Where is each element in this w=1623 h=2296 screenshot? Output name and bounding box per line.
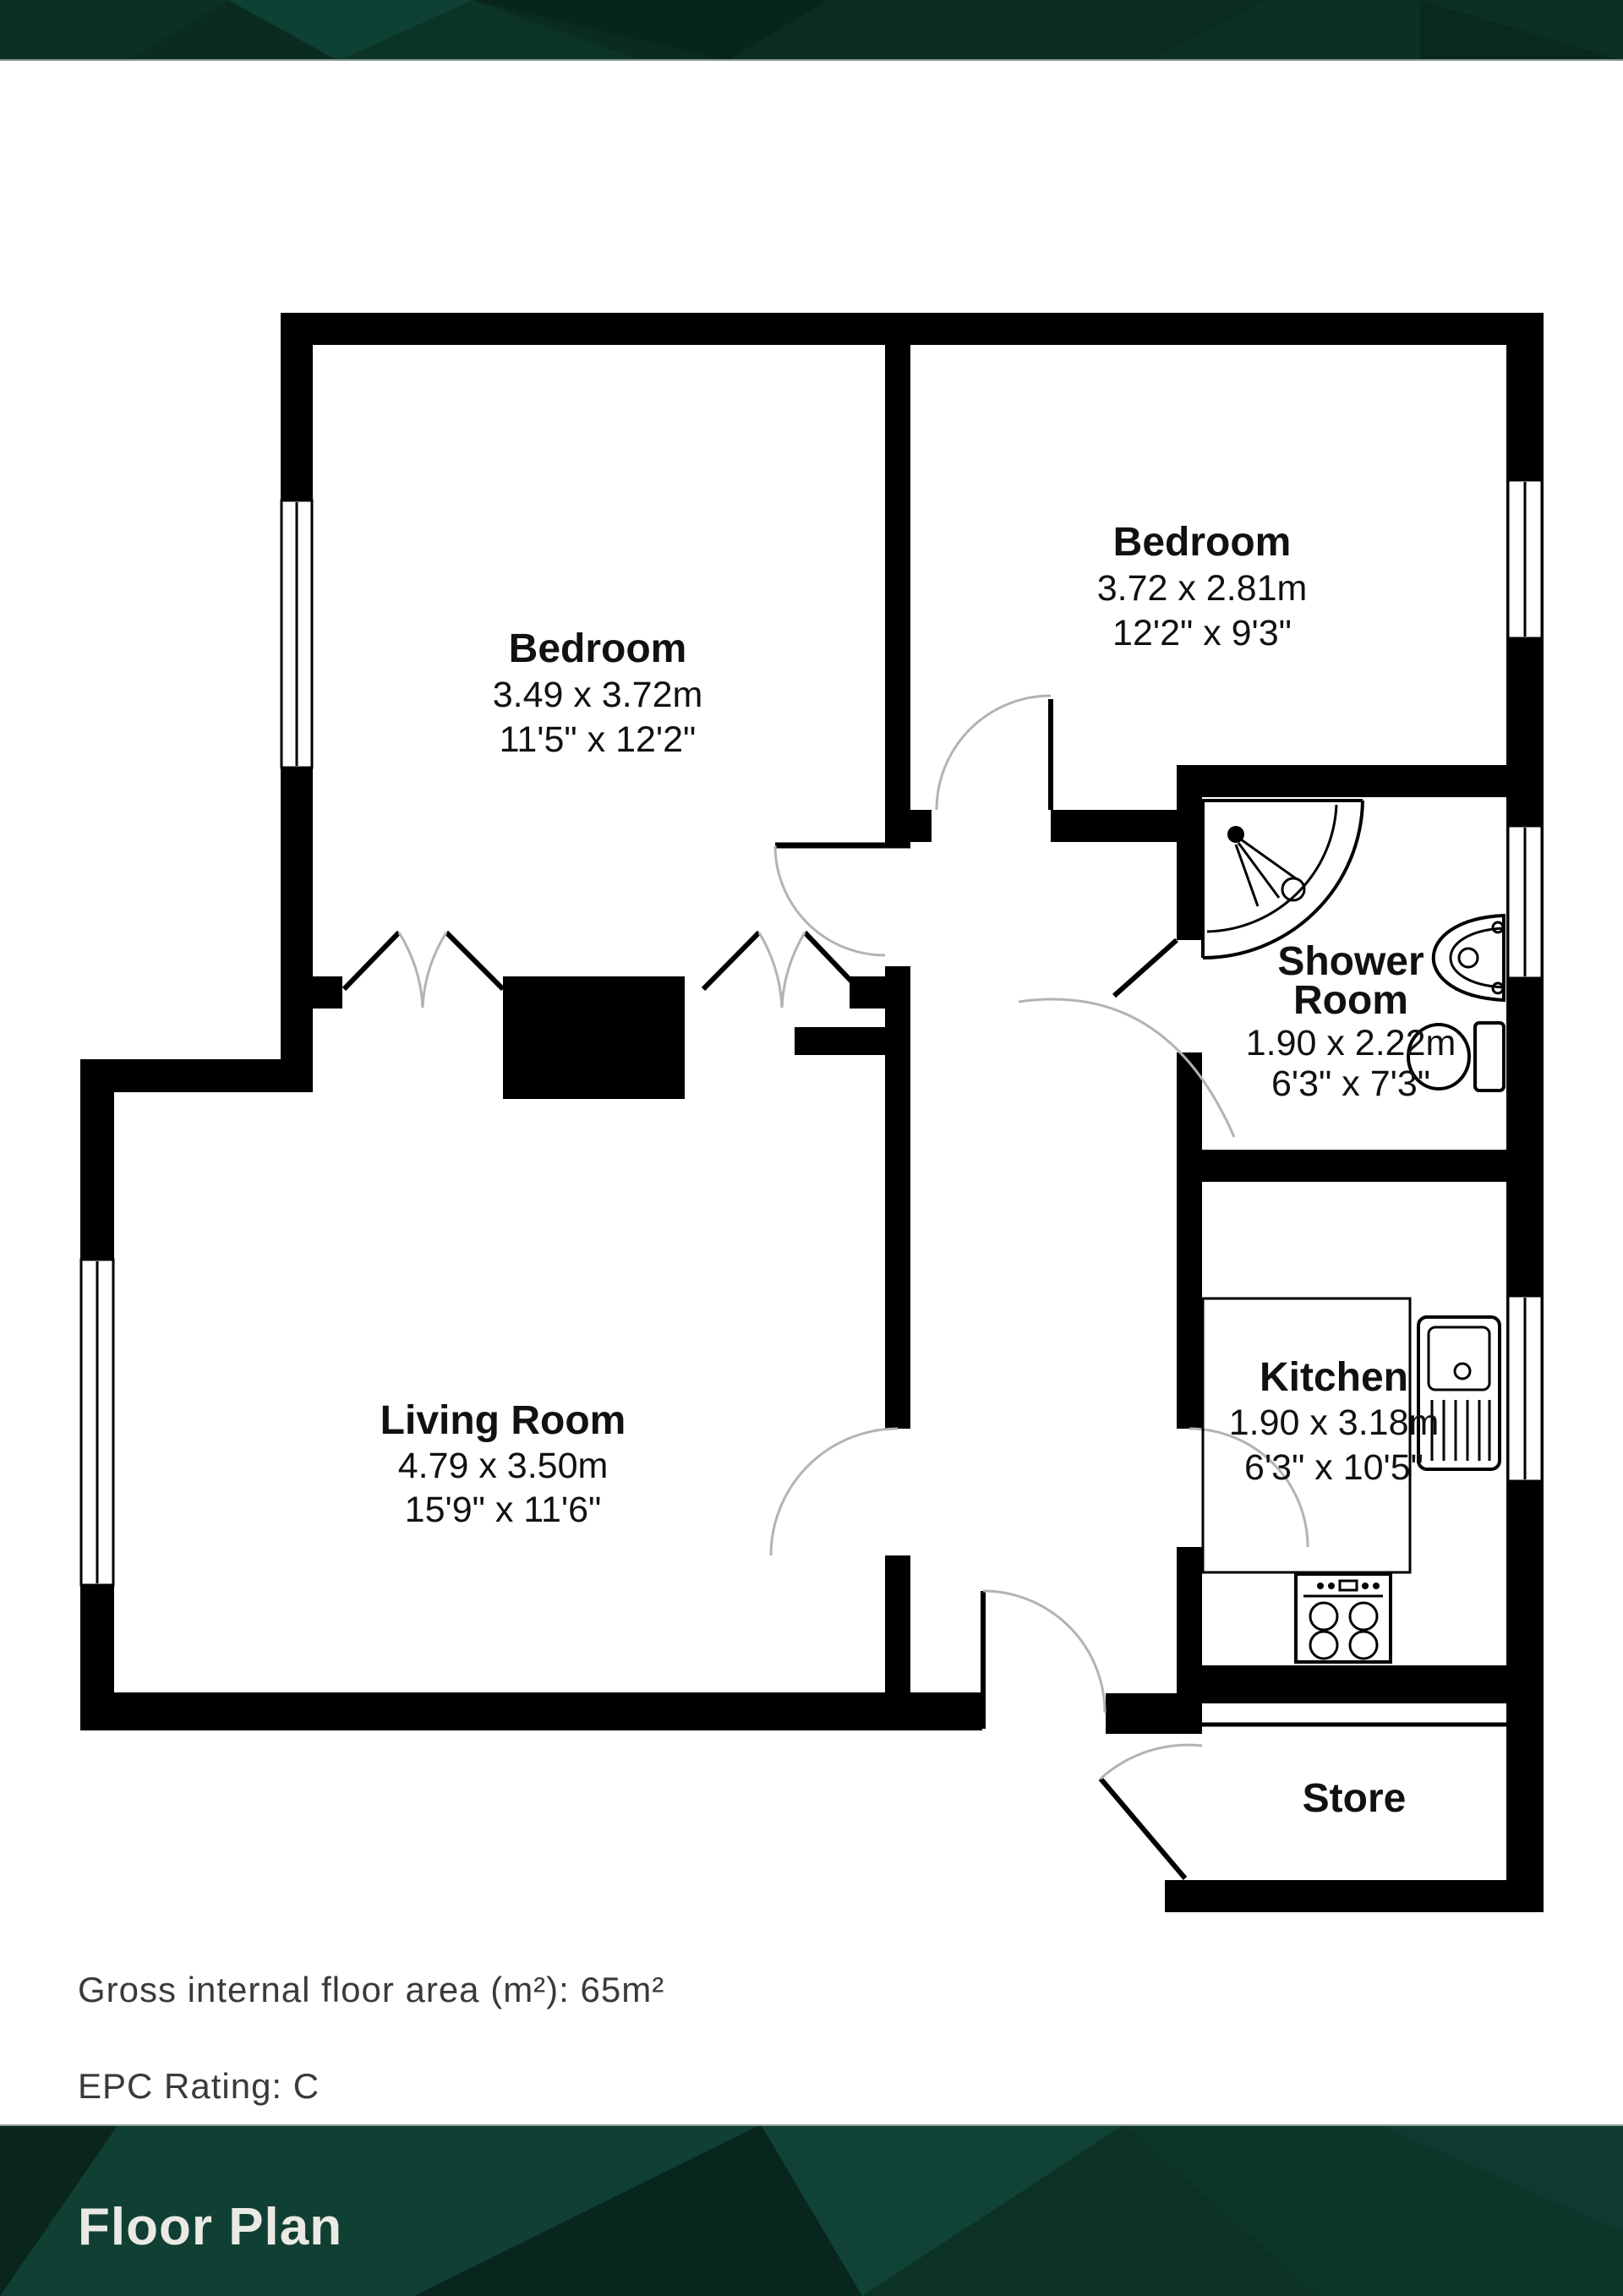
kitchen-metric: 1.90 x 3.18m — [1229, 1402, 1440, 1443]
wall-shower-kitchen-divider — [1177, 1150, 1544, 1182]
living-room-metric: 4.79 x 3.50m — [398, 1446, 609, 1486]
wall-store-bottom — [1165, 1880, 1544, 1912]
bedroom2-door-arc — [937, 696, 1051, 810]
livingroom-door-arc — [771, 1429, 898, 1555]
double-doors-left — [344, 932, 503, 1008]
floor-plan-canvas: Bedroom 3.49 x 3.72m 11'5" x 12'2" Bedro… — [0, 0, 1623, 2296]
room-label-kitchen: Kitchen 1.90 x 3.18m 6'3" x 10'5" — [1229, 1355, 1440, 1488]
wall-bedroom1-bottom-left-stub — [281, 976, 342, 1009]
gross-internal-area-text: Gross internal floor area (m²): 65m² — [78, 1970, 664, 2009]
bedroom2-imperial: 12'2" x 9'3" — [1112, 613, 1292, 653]
wall-bedroom2-bottom — [1051, 810, 1177, 842]
bedroom2-name: Bedroom — [1113, 520, 1292, 565]
wall-livingroom-bottom — [80, 1692, 982, 1730]
wall-hall-left-lower — [885, 1555, 910, 1697]
window-kitchen-right — [1508, 1296, 1542, 1481]
footer-title: Floor Plan — [78, 2198, 342, 2256]
shower-room-metric: 1.90 x 2.22m — [1246, 1023, 1456, 1063]
shower-room-name-line2: Room — [1293, 978, 1408, 1023]
wall-livingroom-top — [80, 1059, 313, 1092]
bedroom2-metric: 3.72 x 2.81m — [1097, 568, 1308, 609]
shower-door-leaf — [1114, 940, 1177, 996]
room-label-bedroom-2: Bedroom 3.72 x 2.81m 12'2" x 9'3" — [1097, 520, 1308, 653]
room-label-shower-room: Shower Room 1.90 x 2.22m 6'3" x 7'3" — [1246, 939, 1456, 1104]
room-label-living-room: Living Room 4.79 x 3.50m 15'9" x 11'6" — [380, 1398, 626, 1530]
epc-rating-text: EPC Rating: C — [78, 2066, 320, 2106]
living-room-name: Living Room — [380, 1398, 626, 1443]
store-name: Store — [1303, 1776, 1407, 1821]
basin-icon — [1434, 916, 1504, 1000]
stove-icon — [1296, 1574, 1391, 1662]
info-block: Gross internal floor area (m²): 65m² EPC… — [78, 1970, 664, 2106]
wall-shower-top — [1177, 765, 1544, 797]
room-label-bedroom-1: Bedroom 3.49 x 3.72m 11'5" x 12'2" — [493, 626, 703, 760]
wall-top — [281, 313, 1544, 345]
shower-room-imperial: 6'3" x 7'3" — [1271, 1063, 1430, 1104]
corner-shower-icon — [1203, 801, 1363, 958]
bedroom1-imperial: 11'5" x 12'2" — [500, 719, 697, 760]
store-door-leaf — [1101, 1779, 1185, 1878]
bedroom1-door-arc — [775, 845, 885, 955]
front-door-arc — [983, 1591, 1105, 1713]
wall-kitchen-left-upper — [1177, 1052, 1202, 1429]
window-bedroom1-left — [281, 500, 312, 768]
window-bedroom2-right — [1508, 480, 1542, 638]
wall-hall-left-upper — [885, 966, 910, 1429]
wall-bedroom1-bottom-right-stub — [850, 976, 885, 1009]
bedroom1-name: Bedroom — [509, 626, 687, 671]
wall-bedroom-divider — [885, 345, 910, 847]
wall-kitchen-bottom — [1177, 1665, 1544, 1703]
living-room-imperial: 15'9" x 11'6" — [405, 1490, 602, 1530]
bedroom1-metric: 3.49 x 3.72m — [493, 675, 703, 715]
wall-bedroom2-bottom-stub — [910, 810, 932, 842]
wall-entrance-right — [1106, 1693, 1202, 1734]
store-door-arc — [1101, 1745, 1202, 1779]
top-banner — [0, 0, 1623, 61]
kitchen-sink-icon — [1418, 1317, 1500, 1469]
room-label-store: Store — [1303, 1776, 1407, 1821]
floor-plan-page: Bedroom 3.49 x 3.72m 11'5" x 12'2" Bedro… — [0, 0, 1623, 2296]
wall-bedroom1-bottom-block — [503, 976, 685, 1099]
fixtures — [1203, 801, 1504, 1662]
kitchen-name: Kitchen — [1260, 1355, 1408, 1400]
wall-livingroom-top-right-stub — [795, 1027, 885, 1055]
window-livingroom-left — [81, 1260, 113, 1585]
bottom-banner: Floor Plan — [0, 2124, 1623, 2296]
kitchen-door-arc — [1189, 1429, 1308, 1547]
kitchen-imperial: 6'3" x 10'5" — [1244, 1447, 1424, 1488]
window-shower-right — [1508, 826, 1542, 978]
